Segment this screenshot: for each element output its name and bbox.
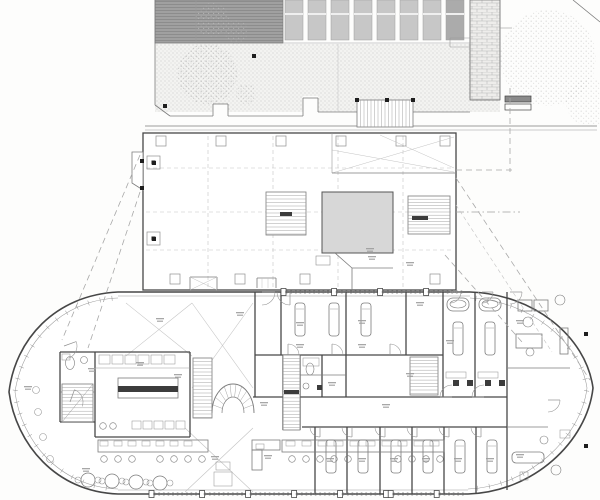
skylight-bar: [354, 0, 372, 40]
skylight-bar-slit: [308, 13, 326, 15]
bed-outline: [361, 303, 371, 336]
upper-floor-stair: [408, 196, 450, 234]
terrace-notch: [213, 104, 228, 116]
label-line: [260, 402, 268, 403]
bed-outline: [326, 440, 336, 473]
massage-bed: [326, 440, 336, 473]
skylight-bar: [446, 0, 464, 40]
bed-outline: [295, 303, 305, 336]
garden-bench: [505, 104, 531, 110]
label-line: [486, 458, 494, 459]
ground-floor-stair: [410, 357, 438, 395]
skylight-bar: [331, 0, 349, 40]
massage-bed: [329, 303, 339, 336]
survey-marker: [140, 186, 144, 190]
dark-fixture: [118, 386, 178, 392]
massage-bed: [487, 440, 497, 473]
label-line: [359, 347, 365, 348]
tree-canopy-icon: [224, 20, 248, 44]
bed-outline: [455, 440, 465, 473]
label-line: [454, 458, 462, 459]
skylight-bar: [400, 0, 418, 40]
label-line: [391, 461, 397, 462]
terrace-stair: [357, 100, 413, 127]
massage-bed: [455, 440, 465, 473]
dark-fixture: [317, 385, 322, 390]
enclosed-gray-room: [322, 192, 393, 253]
skylight-bar-slit: [423, 13, 441, 15]
skylight-bar-slit: [400, 13, 418, 15]
survey-marker: [163, 104, 167, 108]
garden-bench: [505, 96, 531, 102]
survey-marker: [355, 98, 359, 102]
bed-outline: [485, 322, 495, 355]
label-line: [359, 323, 365, 324]
survey-marker: [584, 444, 588, 448]
skylight-bar-slit: [446, 13, 464, 15]
skylight-bar: [423, 0, 441, 40]
label-line: [383, 407, 389, 408]
label-line: [446, 340, 454, 341]
label-line: [516, 454, 524, 455]
label-line: [367, 251, 373, 252]
stair-break-mark: [280, 212, 292, 216]
brick-walkway: [470, 0, 500, 100]
tree-canopy-icon: [195, 3, 229, 37]
skylight-bar-slit: [285, 13, 303, 15]
stair-frame: [410, 357, 438, 395]
label-line: [137, 365, 143, 366]
label-line: [407, 265, 413, 266]
label-line: [265, 458, 271, 459]
dark-fixture: [485, 380, 491, 386]
skylight-bar-slit: [331, 13, 349, 15]
dark-fixture: [467, 380, 473, 386]
floor-plan-canvas: [0, 0, 600, 500]
label-line: [297, 325, 303, 326]
label-line: [390, 458, 398, 459]
label-line: [83, 471, 89, 472]
label-line: [366, 248, 374, 249]
label-line: [329, 385, 335, 386]
survey-marker: [411, 98, 415, 102]
upper-floor-layer: [132, 133, 456, 290]
skylight-bar: [308, 0, 326, 40]
label-line: [136, 362, 144, 363]
label-line: [175, 377, 181, 378]
entry-bay: [132, 152, 143, 190]
bed-outline: [453, 322, 463, 355]
stair-break-mark: [284, 390, 299, 394]
dark-fixture: [453, 380, 459, 386]
label-line: [455, 461, 461, 462]
label-line: [447, 343, 453, 344]
label-line: [417, 305, 423, 306]
stair-frame: [193, 358, 212, 418]
label-line: [261, 405, 267, 406]
label-line: [236, 312, 244, 313]
label-line: [156, 318, 164, 319]
upper-floor-stair: [266, 192, 306, 235]
survey-marker: [584, 332, 588, 336]
label-line: [326, 458, 334, 459]
bed-outline: [358, 440, 368, 473]
label-line: [88, 368, 96, 369]
label-line: [382, 404, 390, 405]
survey-marker: [385, 98, 389, 102]
massage-bed: [295, 303, 305, 336]
ground-floor-stair: [283, 355, 300, 430]
skylight-bar-slit: [354, 13, 372, 15]
tree-canopy-icon: [236, 84, 256, 104]
label-line: [297, 347, 303, 348]
label-line: [296, 344, 304, 345]
massage-bed: [485, 322, 495, 355]
label-line: [327, 461, 333, 462]
label-line: [237, 315, 243, 316]
label-line: [174, 374, 182, 375]
label-line: [406, 373, 414, 374]
label-line: [82, 468, 90, 469]
bed-outline: [487, 440, 497, 473]
skylight-bar: [285, 0, 303, 40]
label-line: [328, 382, 336, 383]
label-line: [407, 376, 413, 377]
label-line: [358, 320, 366, 321]
label-line: [368, 256, 376, 257]
label-line: [296, 322, 304, 323]
ground-floor-stair: [62, 384, 93, 422]
survey-marker: [252, 54, 256, 58]
floor-plan-page: [0, 0, 600, 500]
label-line: [517, 457, 523, 458]
label-line: [212, 459, 218, 460]
label-line: [89, 371, 95, 372]
survey-marker: [152, 237, 156, 241]
label-line: [359, 461, 365, 462]
label-line: [487, 461, 493, 462]
label-line: [423, 461, 429, 462]
survey-marker: [152, 161, 156, 165]
label-line: [517, 323, 523, 324]
ground-floor-stair: [193, 358, 212, 418]
tree-canopy-icon: [177, 44, 237, 104]
bed-outline: [329, 303, 339, 336]
label-line: [264, 455, 272, 456]
label-line: [358, 344, 366, 345]
label-line: [516, 320, 524, 321]
label-line: [358, 458, 366, 459]
label-line: [422, 458, 430, 459]
massage-bed: [358, 440, 368, 473]
dark-fixture: [499, 380, 505, 386]
skylight-bar: [377, 0, 395, 40]
label-line: [369, 259, 375, 260]
stair-break-mark: [412, 216, 428, 220]
label-line: [406, 262, 414, 263]
skylight-bar-slit: [377, 13, 395, 15]
label-line: [25, 389, 31, 390]
label-line: [211, 456, 219, 457]
survey-marker: [140, 159, 144, 163]
label-line: [157, 321, 163, 322]
label-line: [416, 302, 424, 303]
massage-bed: [453, 322, 463, 355]
massage-bed: [361, 303, 371, 336]
label-line: [24, 386, 32, 387]
